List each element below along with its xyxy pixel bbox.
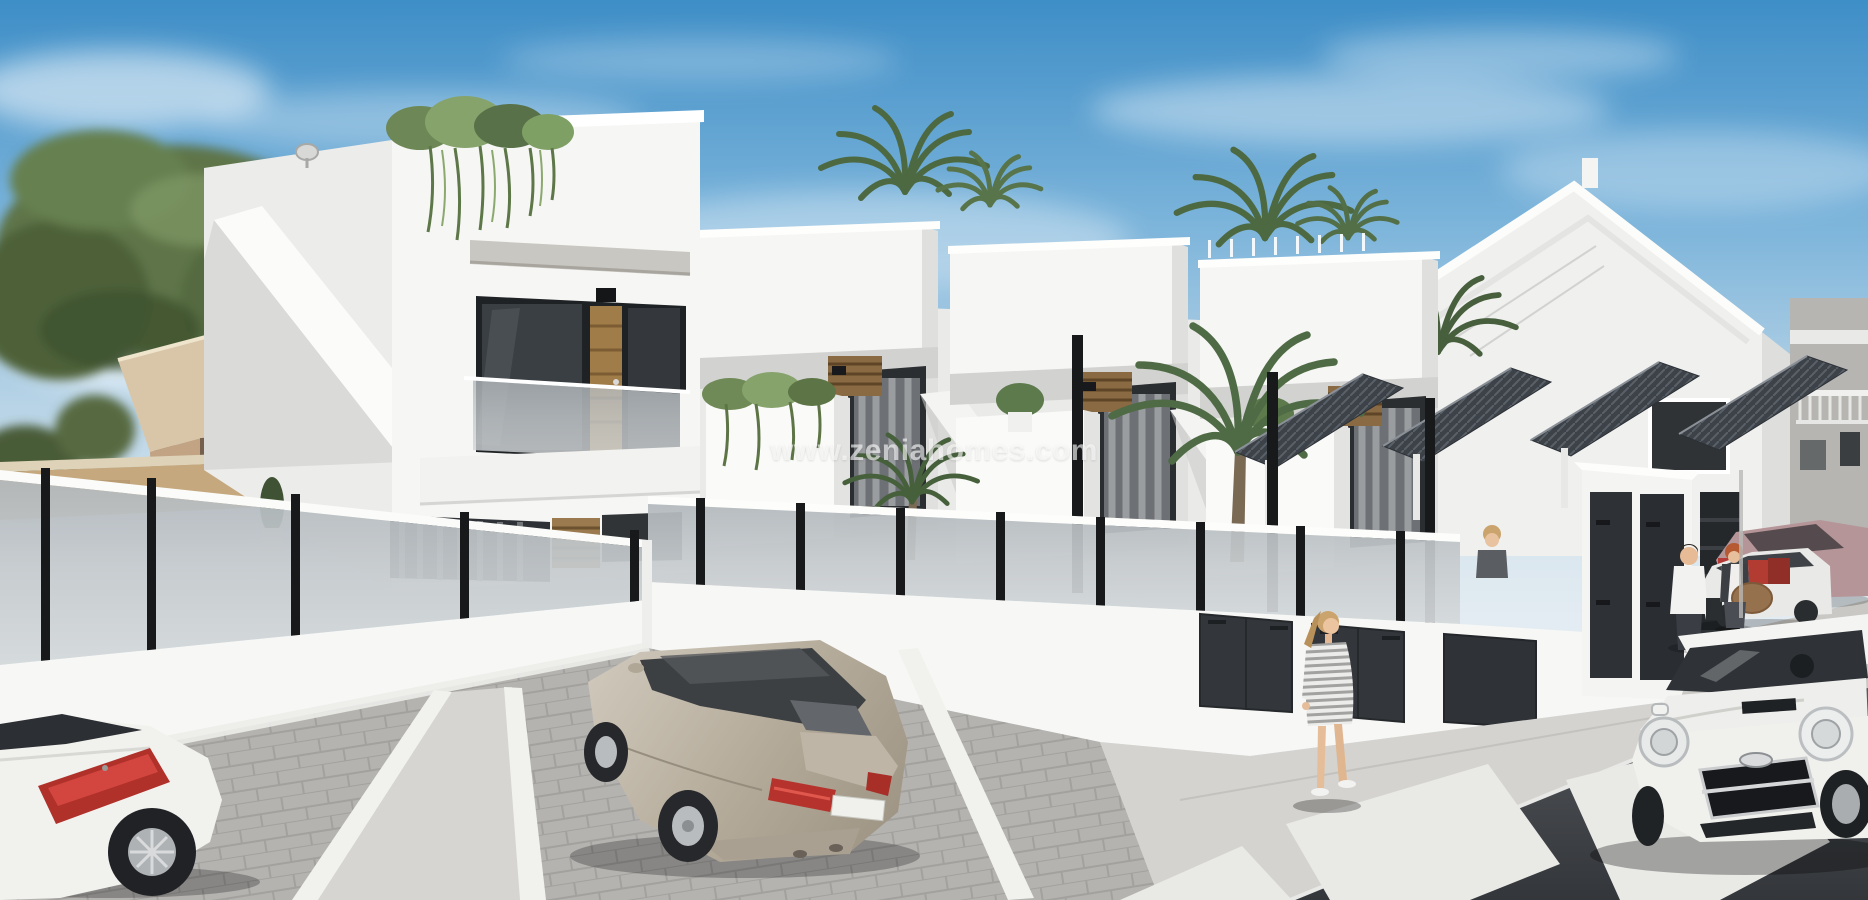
mirror bbox=[1652, 704, 1668, 715]
wall-lamp bbox=[1082, 382, 1096, 391]
sneaker bbox=[1311, 788, 1329, 796]
mini-badge bbox=[1740, 753, 1772, 767]
terrace-lamp bbox=[596, 288, 616, 302]
driver bbox=[1790, 654, 1814, 678]
background-building-right bbox=[1790, 298, 1868, 560]
red-luggage bbox=[1748, 558, 1790, 584]
scene-canvas bbox=[0, 0, 1868, 900]
wood-slats bbox=[828, 356, 882, 396]
briefcase bbox=[1706, 598, 1722, 620]
render-image: www.zeniahomes.com bbox=[0, 0, 1868, 900]
wall-lamp bbox=[832, 366, 846, 375]
wood-slats bbox=[1078, 372, 1132, 412]
car-champagne-sedan bbox=[570, 640, 920, 878]
antenna bbox=[1739, 470, 1743, 618]
sneaker bbox=[1338, 780, 1356, 788]
